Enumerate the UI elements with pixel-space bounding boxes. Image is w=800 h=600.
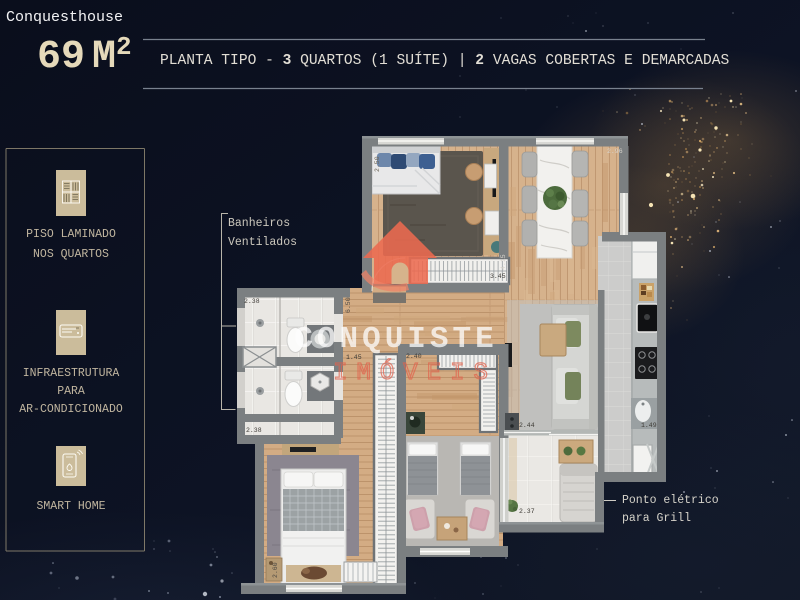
svg-text:Banheiros: Banheiros [228,217,290,230]
svg-text:1.49: 1.49 [641,422,657,429]
svg-text:PISO LAMINADO: PISO LAMINADO [26,228,116,241]
svg-text:CONQUISTE: CONQUISTE [294,322,497,357]
svg-text:2.38: 2.38 [246,427,262,434]
svg-text:2.37: 2.37 [519,508,535,515]
svg-text:6.50: 6.50 [345,297,352,313]
svg-text:para Grill: para Grill [622,512,691,525]
svg-text:Conquesthouse: Conquesthouse [6,9,123,26]
svg-text:Ponto elétrico: Ponto elétrico [622,494,719,507]
svg-text:2.50: 2.50 [374,156,381,172]
svg-text:2.60: 2.60 [272,562,279,578]
svg-text:3.45: 3.45 [490,273,506,280]
svg-text:INFRAESTRUTURA: INFRAESTRUTURA [23,367,120,380]
svg-text:4.15: 4.15 [500,254,507,270]
svg-text:PARA: PARA [57,385,85,398]
svg-text:Ventilados: Ventilados [228,236,297,249]
svg-text:69: 69 [37,35,85,80]
svg-text:2.38: 2.38 [244,298,260,305]
svg-text:SMART HOME: SMART HOME [36,500,105,513]
svg-text:IMÓVEIS: IMÓVEIS [333,358,497,387]
svg-text:NOS QUARTOS: NOS QUARTOS [33,248,109,261]
svg-text:PLANTA TIPO - 3 QUARTOS (1 SUÍ: PLANTA TIPO - 3 QUARTOS (1 SUÍTE) | 2 VA… [160,51,730,69]
svg-text:2.96: 2.96 [607,148,623,155]
svg-text:AR-CONDICIONADO: AR-CONDICIONADO [19,403,123,416]
svg-text:2.44: 2.44 [519,422,535,429]
